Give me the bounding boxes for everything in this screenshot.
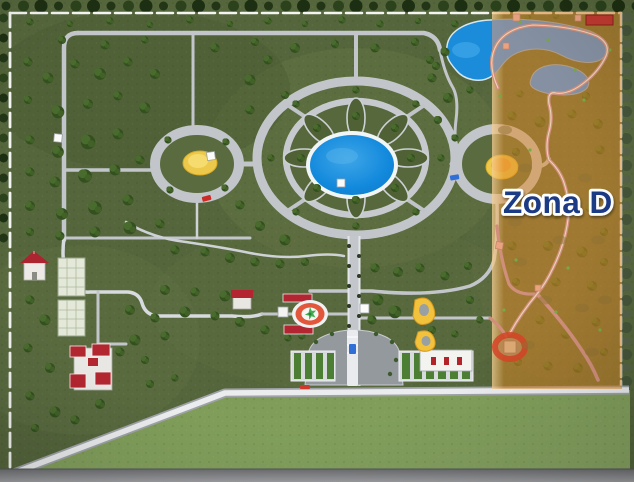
photo-vignette (0, 0, 634, 482)
park-model-photo: Zona D (0, 0, 634, 482)
